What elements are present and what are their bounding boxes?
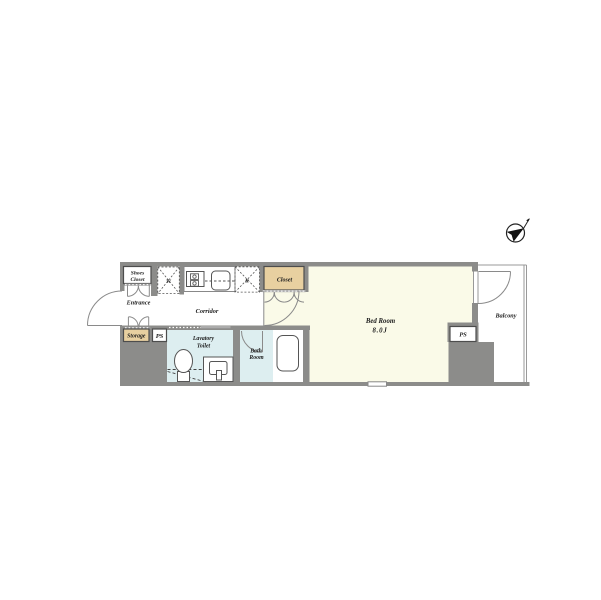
svg-text:Corridor: Corridor xyxy=(196,308,219,315)
svg-text:Closet: Closet xyxy=(130,277,145,283)
svg-text:Shoes: Shoes xyxy=(131,271,144,277)
svg-text:Lavatory: Lavatory xyxy=(192,336,215,342)
svg-text:Storage: Storage xyxy=(127,334,146,340)
svg-text:Balcony: Balcony xyxy=(495,312,517,319)
svg-text:Room: Room xyxy=(248,355,264,361)
svg-text:Toilet: Toilet xyxy=(197,343,211,349)
svg-text:Bath: Bath xyxy=(249,349,262,355)
svg-text:Entrance: Entrance xyxy=(126,299,151,306)
svg-text:PS: PS xyxy=(459,332,467,339)
svg-text:R: R xyxy=(244,278,249,284)
svg-text:Bed Room: Bed Room xyxy=(365,318,395,325)
svg-text:Closet: Closet xyxy=(277,277,293,283)
svg-text:PS: PS xyxy=(156,333,164,340)
svg-text:8.0J: 8.0J xyxy=(372,328,387,335)
